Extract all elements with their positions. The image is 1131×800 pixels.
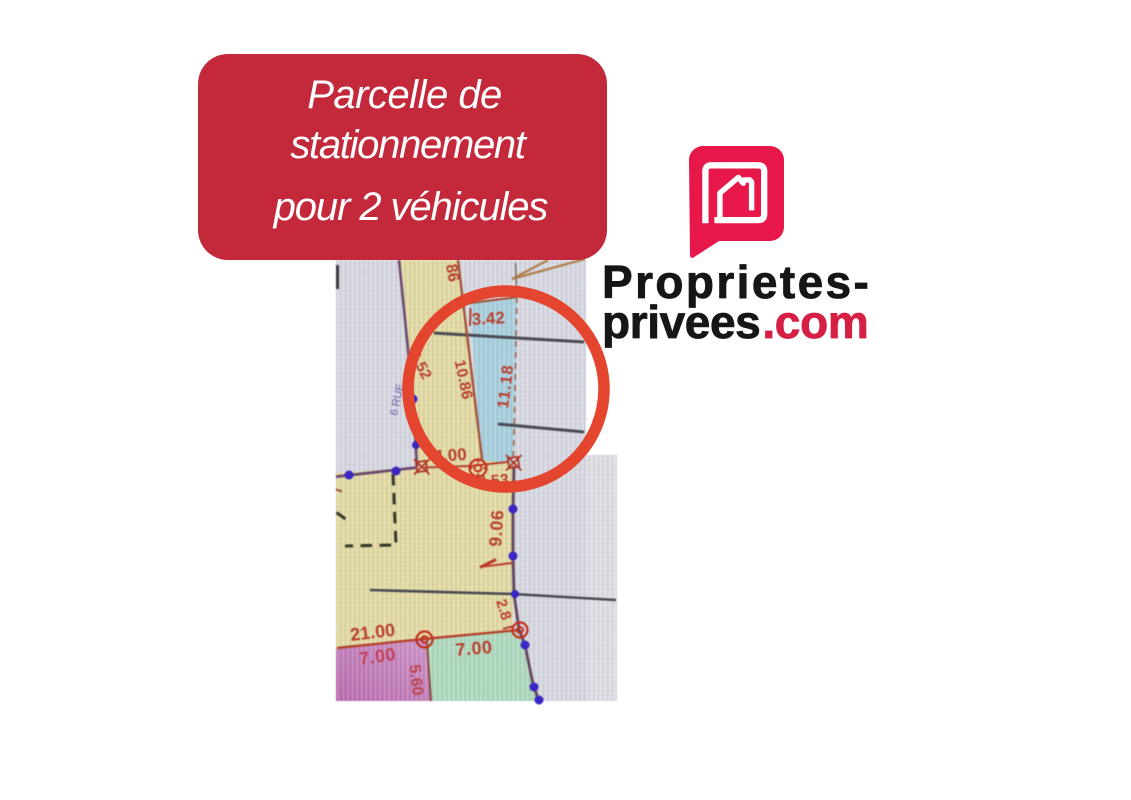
svg-text:7.00: 7.00 <box>455 637 494 660</box>
svg-text:5.60: 5.60 <box>406 664 426 697</box>
svg-text:9.06: 9.06 <box>485 509 508 548</box>
